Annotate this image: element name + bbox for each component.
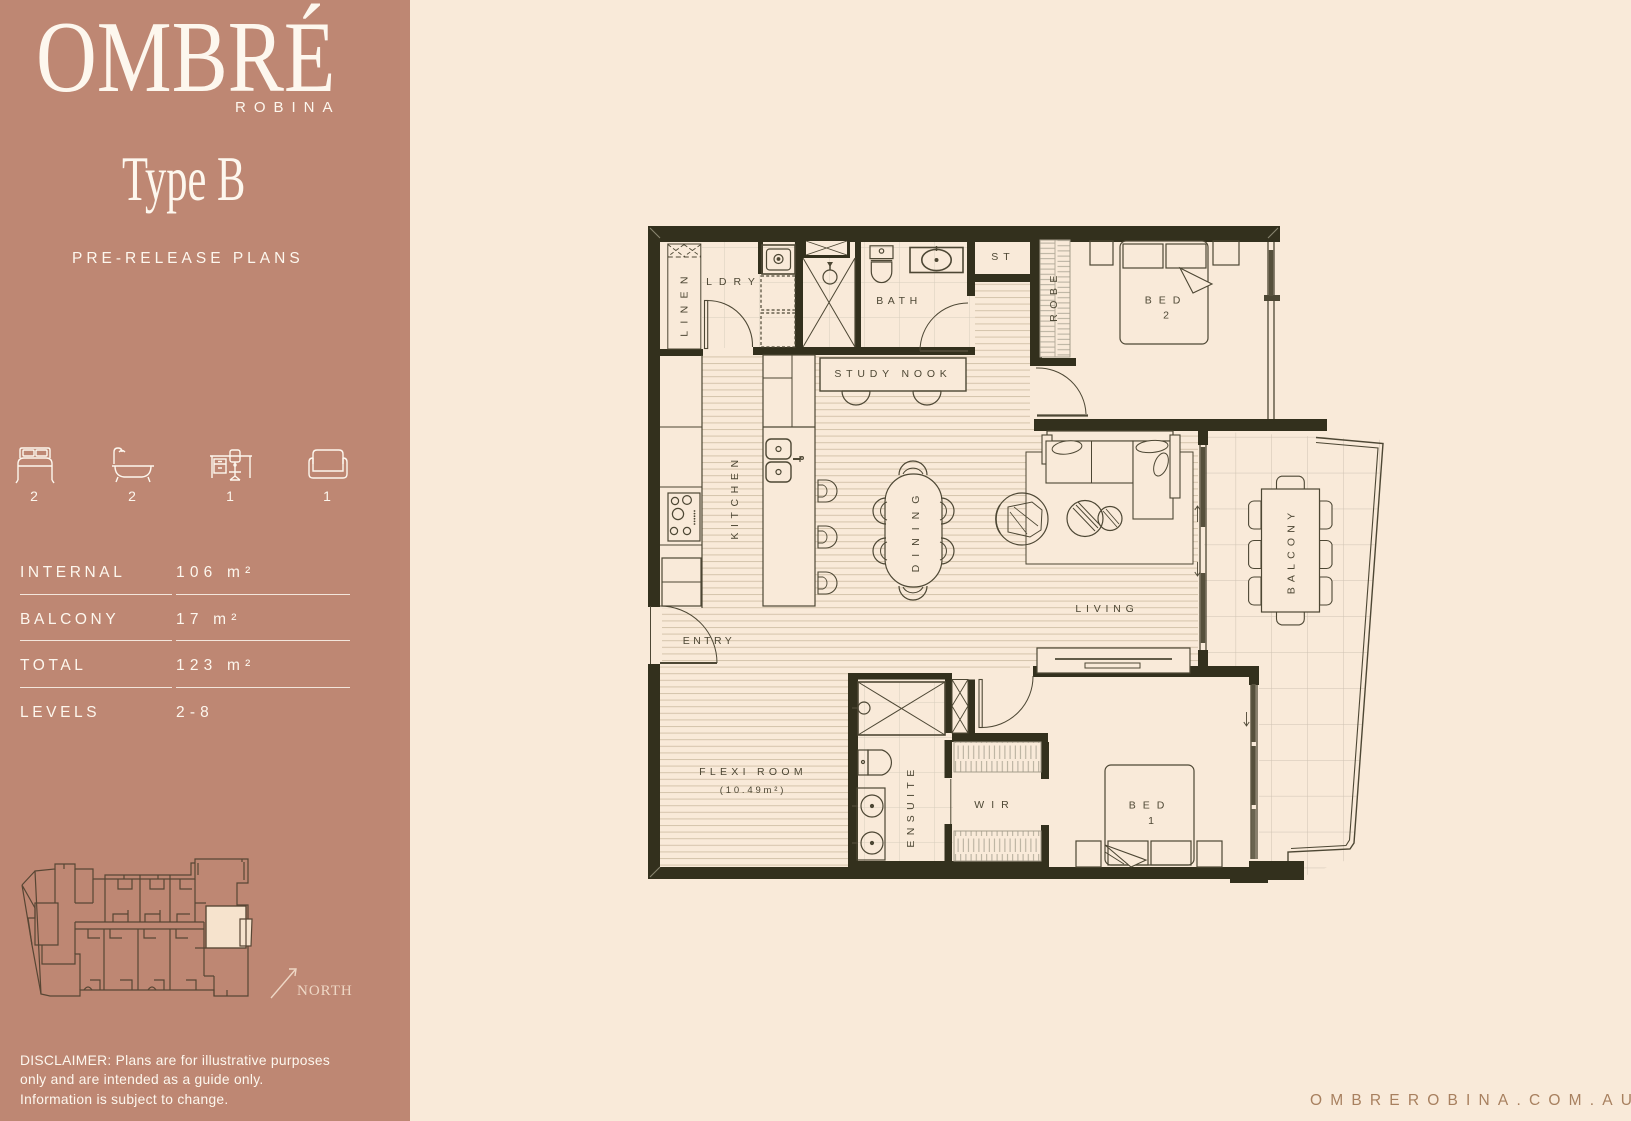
svg-text:BALCONY: BALCONY bbox=[1286, 508, 1298, 595]
svg-text:STUDY NOOK: STUDY NOOK bbox=[834, 368, 951, 380]
svg-text:ROBE: ROBE bbox=[1048, 270, 1060, 322]
svg-text:LINEN: LINEN bbox=[679, 269, 691, 336]
svg-text:KITCHEN: KITCHEN bbox=[729, 454, 741, 539]
svg-text:2: 2 bbox=[1163, 310, 1169, 322]
svg-text:1: 1 bbox=[1148, 815, 1154, 827]
svg-text:BATH: BATH bbox=[876, 295, 922, 307]
svg-text:ST: ST bbox=[991, 251, 1014, 263]
svg-text:ENSUITE: ENSUITE bbox=[905, 764, 917, 847]
svg-text:WIR: WIR bbox=[974, 799, 1015, 811]
svg-text:LIVING: LIVING bbox=[1075, 603, 1138, 615]
svg-text:LDRY: LDRY bbox=[706, 276, 762, 288]
svg-text:DINING: DINING bbox=[910, 488, 922, 573]
svg-text:ENTRY: ENTRY bbox=[683, 635, 735, 647]
svg-text:FLEXI ROOM: FLEXI ROOM bbox=[699, 766, 807, 778]
svg-text:BED: BED bbox=[1129, 800, 1172, 812]
svg-text:(10.49m²): (10.49m²) bbox=[720, 785, 786, 796]
svg-text:BED: BED bbox=[1145, 295, 1188, 307]
